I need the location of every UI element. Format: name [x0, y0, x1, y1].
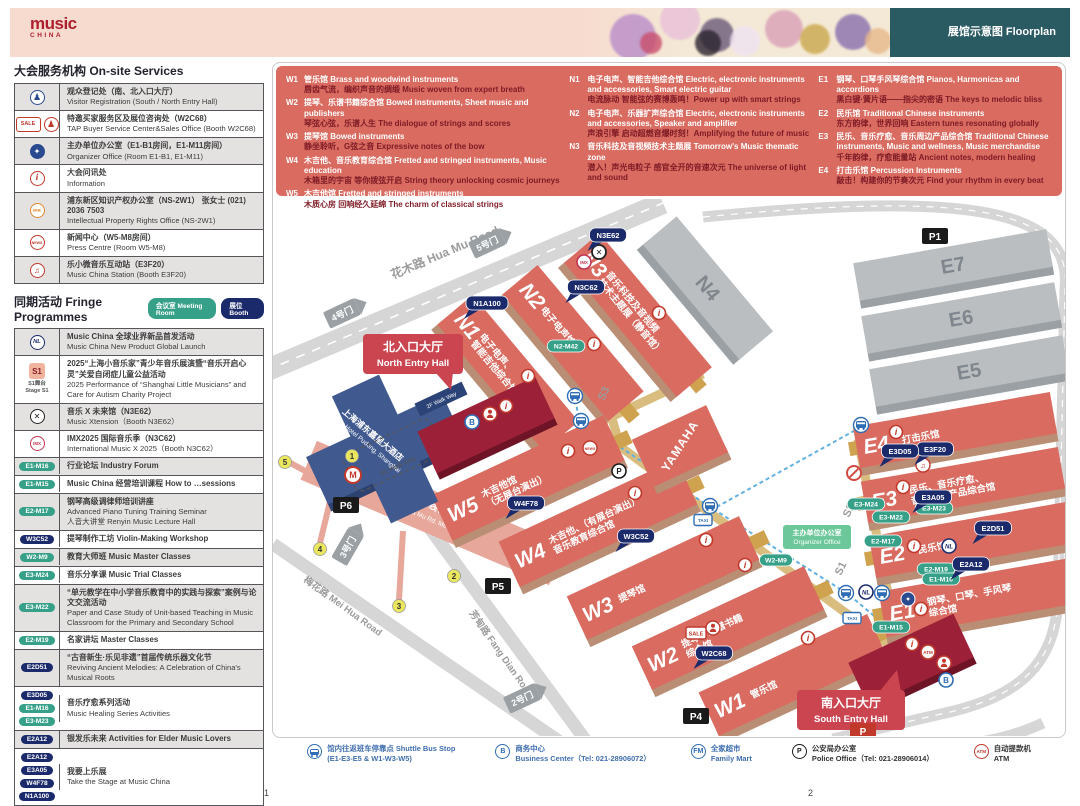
- bus-icon: [307, 744, 322, 759]
- x-icon: ✕: [30, 409, 45, 424]
- fringe-label: 音乐 X 未来馆（N3E62）: [67, 407, 257, 417]
- organizer-office-label: 主办单位办公室 Organizer Office: [783, 525, 851, 549]
- b-icon: B: [465, 415, 479, 429]
- person-icon: [483, 407, 497, 421]
- fringe-label: Music Xtension（Booth N3E62）: [67, 417, 257, 427]
- svg-text:N3C62: N3C62: [574, 283, 597, 292]
- road-label-s1: S1: [833, 560, 850, 577]
- fringe-row: E3D05E1-M16E3-M23音乐疗愈系列活动Music Healing S…: [15, 686, 263, 730]
- service-row: NEWS新闻中心（W5-M8房间）Press Centre (Room W5-M…: [15, 229, 263, 256]
- svg-text:1: 1: [350, 452, 355, 461]
- fringe-row: E1-M16行业论坛 Industry Forum: [15, 457, 263, 475]
- bus-icon: [875, 586, 890, 601]
- sale-icon: SALE: [16, 117, 41, 132]
- svg-text:E1-M15: E1-M15: [879, 625, 903, 632]
- svg-text:✕: ✕: [596, 248, 603, 257]
- fm-icon: FM: [691, 744, 706, 759]
- service-label-zh: 观众登记处（南、北入口大厅）: [67, 87, 257, 97]
- header-artwork: [600, 8, 900, 57]
- booth-pill: 展位 Booth: [221, 298, 264, 319]
- legend-entry-W2: W2提琴、乐谱书籍综合馆 Bowed instruments, Sheet mu…: [286, 98, 561, 129]
- svg-text:E5: E5: [955, 359, 983, 385]
- fringe-label: 2025 Performance of “Shanghai Little Mus…: [67, 380, 257, 400]
- svg-text:2: 2: [452, 572, 457, 581]
- ipr-icon: IPR: [30, 203, 45, 218]
- svg-text:W2C68: W2C68: [701, 649, 726, 658]
- fringe-label: Reviving Ancient Melodies: A Celebration…: [67, 663, 257, 683]
- service-label-en: Visitor Registration (South / North Entr…: [67, 97, 257, 107]
- svg-text:NEWS: NEWS: [585, 447, 596, 451]
- fringe-row: E2-M17钢琴高级调律师培训讲座Advanced Piano Tuning T…: [15, 493, 263, 530]
- services-title: 大会服务机构 On-site Services: [14, 62, 264, 79]
- svg-text:M: M: [349, 470, 357, 480]
- svg-text:IMX: IMX: [580, 260, 588, 265]
- tap-icon: ♟: [44, 117, 59, 132]
- svg-text:N3E62: N3E62: [597, 231, 620, 240]
- taxi-icon: TAXI: [694, 515, 712, 526]
- x-icon: ✕: [592, 245, 606, 259]
- fringe-row: W3C52提琴制作工坊 Violin-Making Workshop: [15, 530, 263, 548]
- service-row: i大会问讯处Information: [15, 164, 263, 191]
- booth-badge: E2D51: [21, 663, 53, 672]
- metro-icon: M: [345, 467, 361, 483]
- footer-item: 馆内往返班车停靠点 Shuttle Bus Stop(E1-E3-E5 & W1…: [307, 744, 455, 764]
- fringe-row: E3-M22“单元教学在中小学音乐教育中的实践与探索”案例与论文交流活动Pape…: [15, 584, 263, 631]
- info-icon: i: [908, 540, 921, 553]
- nl-icon: NL: [859, 585, 873, 599]
- fringe-label: Music China 经营培训课程 How to …sessions: [67, 479, 257, 489]
- svg-text:NL: NL: [945, 544, 953, 550]
- svg-text:P: P: [860, 727, 867, 736]
- police-icon: P: [792, 744, 807, 759]
- fringe-row: W2-M9教育大师班 Music Master Classes: [15, 548, 263, 566]
- info-icon: i: [562, 445, 575, 458]
- floorplan-brochure: { "header": {"logo_title": "music", "log…: [0, 0, 1080, 806]
- svg-text:E7: E7: [939, 253, 967, 279]
- imx-icon: IMX: [577, 255, 591, 269]
- legend-entry-E2: E2民乐馆 Traditional Chinese instruments东方韵…: [818, 109, 1052, 129]
- nl-icon: NL: [942, 539, 956, 553]
- svg-text:Organizer Office: Organizer Office: [793, 539, 841, 546]
- atm-icon: ATM: [921, 645, 935, 659]
- fringe-row: E3-M24音乐分享课 Music Trial Classes: [15, 566, 263, 584]
- imx-icon: IMX: [30, 436, 45, 451]
- metro-exit-1: 1: [346, 450, 359, 463]
- booth-badge: E3A05: [21, 766, 53, 775]
- info-icon: i: [500, 400, 513, 413]
- booth-badge: W4F78: [20, 779, 53, 788]
- room-badge: E2-M17: [19, 507, 54, 516]
- visitor-icon: ♟: [30, 90, 45, 105]
- legend-column: W1管乐馆 Brass and woodwind instruments唇齿气流…: [286, 75, 561, 187]
- organizer-icon: ✦: [30, 144, 45, 159]
- bus-icon: [703, 499, 718, 514]
- page-header: music CHINA 展馆示意图 Floorplan: [10, 8, 1070, 57]
- taxi-icon: TAXI: [843, 613, 861, 624]
- fringe-row: E2A12银发乐未来 Activities for Elder Music Lo…: [15, 730, 263, 748]
- booth-badge: E3D05: [21, 691, 53, 700]
- svg-text:S1: S1: [833, 560, 850, 577]
- metro-exit-5: 5: [279, 456, 292, 469]
- fringe-row: E1-M15Music China 经营培训课程 How to …session…: [15, 475, 263, 493]
- svg-text:B: B: [943, 676, 949, 685]
- person-icon: [706, 621, 720, 635]
- room-tag-E3-M22: E3-M22: [872, 511, 910, 523]
- footer-item: ATM自动提款机ATM: [974, 744, 1031, 764]
- svg-text:P6: P6: [340, 501, 353, 512]
- service-label-zh: 大会问讯处: [67, 168, 257, 178]
- b-icon: B: [495, 744, 510, 759]
- service-row: IPR浦东新区知识产权办公室（NS-2W1） 张女士 (021) 2036 75…: [15, 192, 263, 229]
- legend-entry-W4: W4木吉他、音乐教育综合馆 Fretted and stringed instr…: [286, 156, 561, 187]
- room-badge: E2-M19: [19, 636, 54, 645]
- svg-text:E2-M19: E2-M19: [924, 567, 948, 574]
- info-icon: i: [653, 307, 666, 320]
- services-list: ♟观众登记处（南、北入口大厅）Visitor Registration (Sou…: [14, 83, 264, 284]
- info-icon: i: [629, 487, 642, 500]
- logo-subtitle: CHINA: [30, 32, 77, 39]
- room-tag-E2-M17: E2-M17: [864, 535, 902, 547]
- gate-3号门: 3号门: [331, 519, 369, 566]
- svg-text:4: 4: [318, 545, 323, 554]
- fringe-label: 人音大讲堂 Renyin Music Lecture Hall: [67, 517, 257, 527]
- svg-text:P1: P1: [929, 232, 942, 243]
- info-icon: i: [522, 370, 535, 383]
- fringe-label: 2025“上海小音乐家”青少年音乐展演暨“音乐开启心灵”关爱自闭症儿童公益活动: [67, 359, 257, 380]
- service-row: ✦主办单位办公室（E1-B1房间，E1-M11房间）Organizer Offi…: [15, 137, 263, 164]
- svg-text:SALE: SALE: [689, 631, 704, 637]
- organizer-icon: ✦: [901, 592, 915, 606]
- fringe-row: IMXIMX2025 国际音乐季（N3C62）International Mus…: [15, 430, 263, 457]
- svg-text:♫: ♫: [920, 461, 926, 470]
- fringe-row: E2D51“古音新生·乐见非遗”首届传统乐器文化节Reviving Ancien…: [15, 649, 263, 686]
- bus-icon: [574, 414, 589, 429]
- room-tag-W2-M9: W2-M9: [760, 554, 793, 566]
- room-badge: E1-M15: [19, 480, 54, 489]
- svg-text:N1A100: N1A100: [473, 299, 501, 308]
- info-icon: i: [906, 638, 919, 651]
- fringe-label: 提琴制作工坊 Violin-Making Workshop: [67, 534, 257, 544]
- parking-P: P: [850, 723, 876, 736]
- person-icon: [937, 656, 951, 670]
- service-label-en: Organizer Office (Room E1-B1, E1-M11): [67, 152, 257, 162]
- booth-badge: W3C52: [20, 535, 54, 544]
- info-icon: i: [915, 603, 928, 616]
- svg-text:W2-M9: W2-M9: [765, 558, 787, 565]
- parking-P6: P6: [333, 497, 359, 513]
- s1stage-icon: S1: [29, 363, 45, 379]
- fringe-label: 我要上乐展: [67, 767, 257, 777]
- svg-text:E3A05: E3A05: [922, 493, 945, 502]
- b-icon: B: [939, 673, 953, 687]
- parking-P4: P4: [683, 708, 709, 724]
- svg-text:E6: E6: [947, 306, 975, 332]
- svg-text:E2D51: E2D51: [982, 524, 1005, 533]
- svg-text:B: B: [469, 418, 475, 427]
- room-badge: E3-M22: [19, 603, 54, 612]
- svg-text:E3-M24: E3-M24: [854, 502, 878, 509]
- service-label-en: Intellectual Property Rights Office (NS-…: [67, 216, 257, 226]
- svg-text:NL: NL: [862, 590, 870, 596]
- legend-entry-E3: E3民乐、音乐疗愈、音乐周边产品综合馆 Traditional Chinese …: [818, 132, 1052, 163]
- info-icon: i: [739, 559, 752, 572]
- fringe-label: Music China New Product Global Launch: [67, 342, 257, 352]
- legend-entry-E1: E1钢琴、口琴手风琴综合馆 Pianos, Harmonicas and acc…: [818, 75, 1052, 106]
- service-label-en: TAP Buyer Service Center&Sales Office (B…: [67, 124, 257, 134]
- svg-text:北入口大厅: 北入口大厅: [383, 339, 443, 354]
- svg-text:主办单位办公室: 主办单位办公室: [793, 528, 842, 537]
- service-label-zh: 特邀买家服务区及展位咨询处（W2C68）: [67, 114, 257, 124]
- metro-exit-3: 3: [393, 600, 406, 613]
- info-icon: i: [897, 481, 910, 494]
- fringe-row: NLMusic China 全球业界新品首发活动Music China New …: [15, 329, 263, 355]
- fringe-label: Music Healing Series Activities: [67, 709, 257, 719]
- svg-text:E3D05: E3D05: [889, 447, 912, 456]
- room-badge: E3-M24: [19, 571, 54, 580]
- map-footer-legend: 馆内往返班车停靠点 Shuttle Bus Stop(E1-E3-E5 & W1…: [272, 744, 1066, 764]
- legend-entry-W1: W1管乐馆 Brass and woodwind instruments唇齿气流…: [286, 75, 561, 95]
- svg-text:TAXI: TAXI: [698, 518, 708, 523]
- fringe-label: International Music X 2025（Booth N3C62）: [67, 444, 257, 454]
- legend-entry-N2: N2电子电声、乐器扩声综合馆 Electric, electronic inst…: [569, 109, 810, 140]
- info-icon: i: [700, 534, 713, 547]
- fringe-row: S1S1舞台 Stage S12025“上海小音乐家”青少年音乐展演暨“音乐开启…: [15, 355, 263, 402]
- svg-text:W4F78: W4F78: [514, 499, 538, 508]
- legend-entry-W3: W3提琴馆 Bowed instruments静坐聆听，G弦之音 Express…: [286, 132, 561, 152]
- fringe-list: NLMusic China 全球业界新品首发活动Music China New …: [14, 328, 264, 806]
- service-label-zh: 主办单位办公室（E1-B1房间，E1-M11房间）: [67, 141, 257, 151]
- svg-text:5: 5: [283, 458, 288, 467]
- booth-pin-W3C52: W3C52: [616, 529, 655, 552]
- page-number-left: 1: [264, 788, 269, 798]
- service-row: SALE♟特邀买家服务区及展位咨询处（W2C68）TAP Buyer Servi…: [15, 110, 263, 137]
- svg-text:E2-M17: E2-M17: [871, 539, 895, 546]
- service-label-en: Music China Station (Booth E3F20): [67, 270, 257, 280]
- police-icon: P: [612, 464, 626, 478]
- footer-item: B商务中心Business Center（Tel: 021-28906072）: [495, 744, 650, 764]
- legend-column: E1钢琴、口琴手风琴综合馆 Pianos, Harmonicas and acc…: [818, 75, 1052, 187]
- fringe-row: E2-M19名家讲坛 Master Classes: [15, 631, 263, 649]
- floorplan-map: 地铁7号线花木路站 Line 7 Hua Mu Rd. Metro Statio…: [273, 199, 1065, 736]
- booth-badge: E2A12: [21, 753, 53, 762]
- room-badge: E1-M16: [19, 704, 54, 713]
- meeting-room-pill: 会议室 Meeting Room: [148, 298, 216, 319]
- booth-badge: E2A12: [21, 735, 53, 744]
- info-icon: i: [890, 426, 903, 439]
- news-icon: NEWS: [583, 441, 597, 455]
- room-tag-N2-M42: N2-M42: [547, 340, 585, 352]
- room-badge: E3-M23: [19, 717, 54, 726]
- parking-P1: P1: [922, 228, 948, 244]
- svg-text:W3C52: W3C52: [623, 532, 648, 541]
- fringe-label: Take the Stage at Music China: [67, 777, 257, 787]
- svg-text:P: P: [616, 467, 622, 476]
- fringe-label: 音乐分享课 Music Trial Classes: [67, 570, 257, 580]
- room-badge: E1-M16: [19, 462, 54, 471]
- svg-text:3: 3: [397, 602, 402, 611]
- booth-badge: N1A100: [19, 792, 55, 801]
- parking-P5: P5: [485, 578, 511, 594]
- fringe-row: E2A12E3A05W4F78N1A100我要上乐展Take the Stage…: [15, 748, 263, 805]
- sale-icon: SALE: [686, 627, 706, 639]
- fringe-label: “单元教学在中小学音乐教育中的实践与探索”案例与论文交流活动: [67, 588, 257, 609]
- service-row: ♫乐小微音乐互动站（E3F20）Music China Station (Boo…: [15, 256, 263, 283]
- service-label-zh: 新闻中心（W5-M8房间）: [67, 233, 257, 243]
- svg-text:E3-M23: E3-M23: [922, 506, 946, 513]
- atm-icon: ATM: [974, 744, 989, 759]
- fringe-label: 钢琴高级调律师培训讲座: [67, 497, 257, 507]
- service-label-en: Press Centre (Room W5-M8): [67, 243, 257, 253]
- hall-legend: W1管乐馆 Brass and woodwind instruments唇齿气流…: [276, 66, 1062, 196]
- info-icon: i: [588, 338, 601, 351]
- fringe-row: ✕音乐 X 未来馆（N3E62）Music Xtension（Booth N3E…: [15, 403, 263, 430]
- svg-text:N2-M42: N2-M42: [554, 344, 578, 351]
- room-tag-E1-M15: E1-M15: [872, 621, 910, 633]
- room-tag-E3-M24: E3-M24: [847, 498, 885, 510]
- page-title: 展馆示意图 Floorplan: [890, 8, 1070, 57]
- bus-icon: [839, 586, 854, 601]
- fringe-label: 音乐疗愈系列活动: [67, 698, 257, 708]
- legend-entry-N3: N3音乐科技及音视频技术主题展 Tomorrow's Music themati…: [569, 142, 810, 183]
- footer-item: P公安局办公室Police Office（Tel: 021-28906014）: [792, 744, 934, 764]
- svg-text:E3-M22: E3-M22: [879, 515, 903, 522]
- footer-item: FM全家超市Family Mart: [691, 744, 752, 764]
- metro-exit-4: 4: [314, 543, 327, 556]
- svg-text:TAXI: TAXI: [847, 616, 857, 621]
- fringe-label: Paper and Case Study of Unit-based Teach…: [67, 608, 257, 628]
- fringe-label: 行业论坛 Industry Forum: [67, 461, 257, 471]
- service-row: ♟观众登记处（南、北入口大厅）Visitor Registration (Sou…: [15, 84, 263, 110]
- svg-text:E1-M16: E1-M16: [929, 577, 953, 584]
- service-label-zh: 浦东新区知识产权办公室（NS-2W1） 张女士 (021) 2036 7503: [67, 196, 257, 217]
- fringe-title: 同期活动 Fringe Programmes: [14, 293, 143, 324]
- noentry-icon: [847, 466, 861, 480]
- bus-icon: [854, 418, 869, 433]
- legend-entry-N1: N1电子电声、智能吉他综合馆 Electric, electronic inst…: [569, 75, 810, 106]
- fringe-label: 教育大师班 Music Master Classes: [67, 552, 257, 562]
- info-icon: i: [802, 632, 815, 645]
- room-badge: W2-M9: [20, 553, 53, 562]
- map-page: W1管乐馆 Brass and woodwind instruments唇齿气流…: [272, 62, 1066, 738]
- fringe-label: Music China 全球业界新品首发活动: [67, 332, 257, 342]
- info-icon: i: [30, 171, 45, 186]
- fringe-label: 名家讲坛 Master Classes: [67, 635, 257, 645]
- news-icon: NEWS: [30, 235, 45, 250]
- page-number-right: 2: [808, 788, 813, 798]
- svg-text:E3F20: E3F20: [924, 445, 946, 454]
- service-label-en: Information: [67, 179, 257, 189]
- icon-caption: S1舞台 Stage S1: [25, 381, 48, 395]
- sidebar: 大会服务机构 On-site Services ♟观众登记处（南、北入口大厅）V…: [14, 62, 264, 806]
- legend-entry-E4: E4打击乐馆 Percussion Instruments敲击！构建你的节奏次元…: [818, 166, 1052, 186]
- logo-title: music: [30, 15, 77, 32]
- station-icon: ♫: [30, 263, 45, 278]
- svg-text:E2A12: E2A12: [960, 560, 983, 569]
- fringe-label: “古音新生·乐见非遗”首届传统乐器文化节: [67, 653, 257, 663]
- svg-text:North Entry Hall: North Entry Hall: [377, 358, 449, 369]
- svg-text:ATM: ATM: [923, 650, 933, 655]
- service-label-zh: 乐小微音乐互动站（E3F20）: [67, 260, 257, 270]
- legend-column: N1电子电声、智能吉他综合馆 Electric, electronic inst…: [569, 75, 810, 187]
- svg-text:✦: ✦: [905, 596, 911, 604]
- svg-text:南入口大厅: 南入口大厅: [821, 695, 881, 710]
- music-china-logo: music CHINA: [30, 15, 77, 39]
- fringe-label: IMX2025 国际音乐季（N3C62）: [67, 434, 257, 444]
- svg-text:P5: P5: [492, 582, 505, 593]
- metro-exit-2: 2: [448, 570, 461, 583]
- fringe-label: 银发乐未来 Activities for Elder Music Lovers: [67, 734, 257, 744]
- bus-icon: [568, 389, 583, 404]
- fringe-label: Advanced Piano Tuning Training Seminar: [67, 507, 257, 517]
- svg-text:P4: P4: [690, 712, 703, 723]
- nl-icon: NL: [30, 335, 45, 350]
